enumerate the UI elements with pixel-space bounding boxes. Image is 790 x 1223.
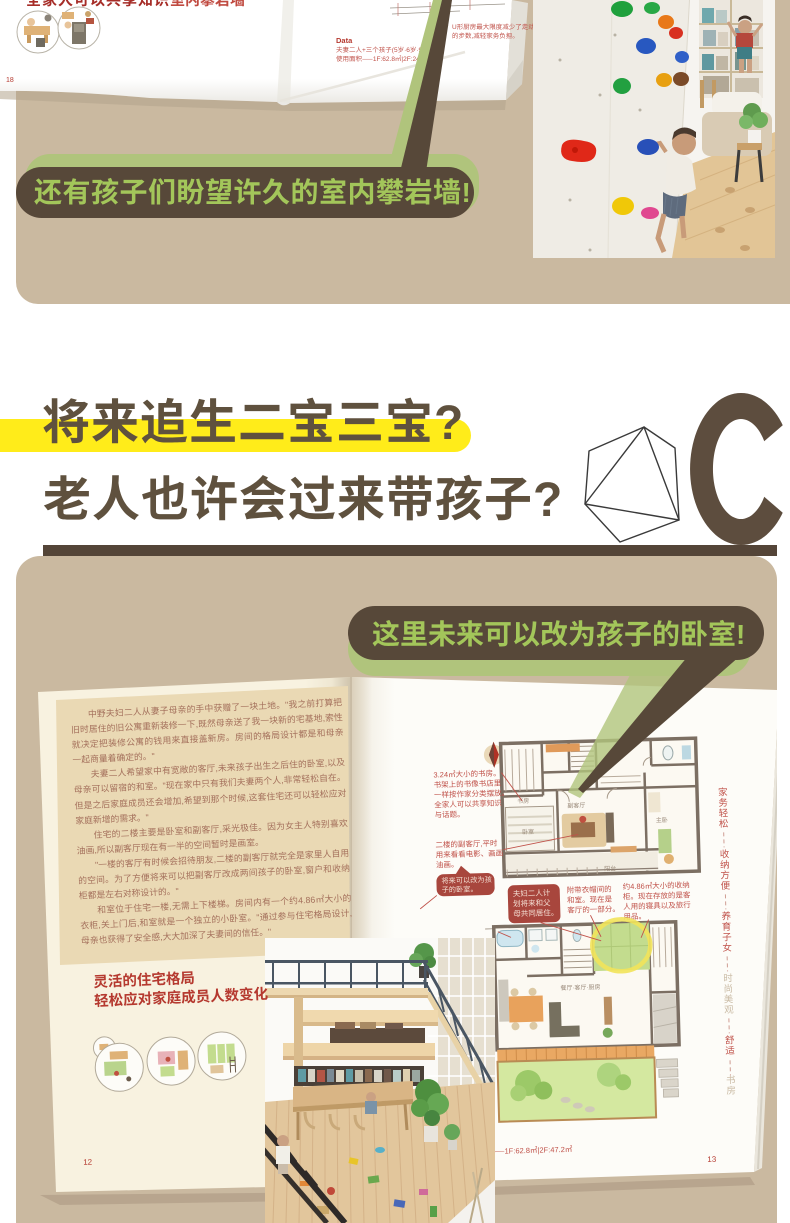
- svg-text:附带衣帽间的 和室。现在是 客厅的一部分。: 附带衣帽间的 和室。现在是 客厅的一部分。: [567, 883, 620, 915]
- svg-text:书房: 书房: [726, 1072, 737, 1097]
- svg-text:室内攀岩墙: 室内攀岩墙: [170, 0, 245, 10]
- svg-text:主卧: 主卧: [656, 815, 668, 824]
- svg-text:13: 13: [707, 1154, 717, 1165]
- svg-text:餐厅·客厅·厨房: 餐厅·客厅·厨房: [560, 982, 600, 992]
- svg-text:时尚美观: 时尚美观: [723, 970, 734, 1016]
- svg-text:舒适: 舒适: [725, 1032, 736, 1057]
- svg-text:全家人可以共享知识: 全家人可以共享知识: [26, 0, 170, 10]
- svg-text:阳台: 阳台: [604, 863, 616, 872]
- svg-text:卧室: 卧室: [522, 827, 534, 836]
- svg-text:收纳方便: 收纳方便: [720, 846, 731, 892]
- svg-text:养育子女: 养育子女: [721, 908, 732, 954]
- svg-text:12: 12: [83, 1156, 93, 1167]
- svg-text:夫妇二人计 划将来和父 母共同居住。: 夫妇二人计 划将来和父 母共同居住。: [513, 887, 559, 919]
- svg-text:18: 18: [6, 75, 14, 85]
